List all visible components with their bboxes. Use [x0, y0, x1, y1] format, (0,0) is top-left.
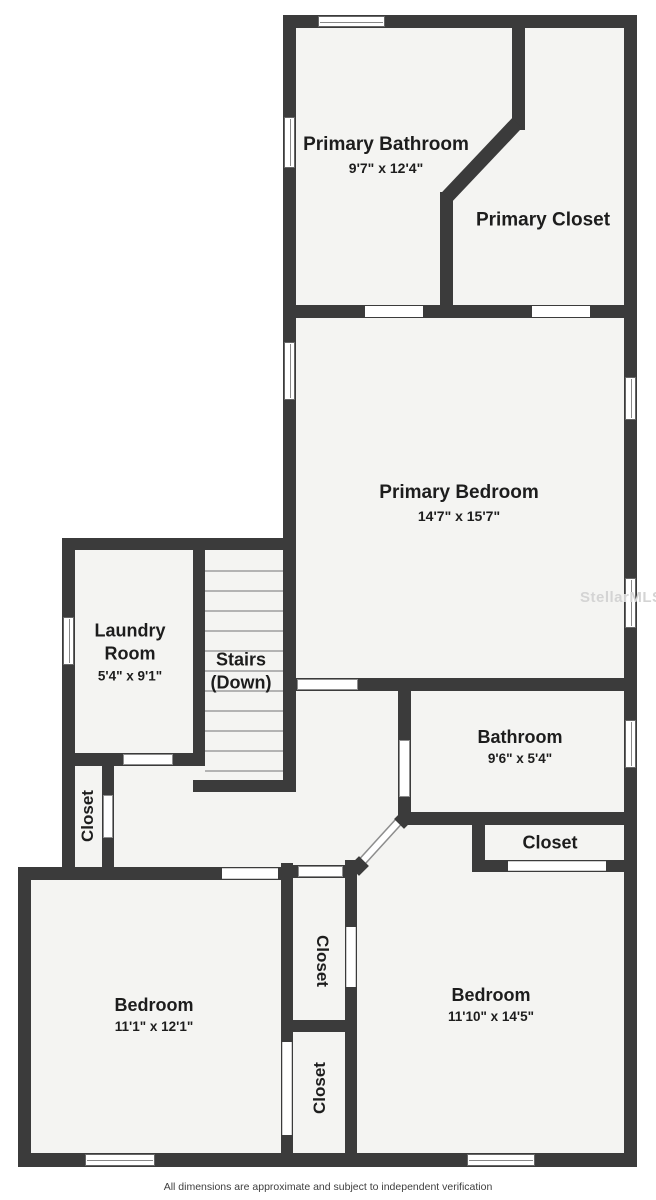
window-primary-bedroom-right-1 [625, 377, 636, 420]
door-bathroom [399, 740, 410, 797]
window-left-bedroom-bottom [85, 1154, 155, 1166]
wall-left-bedroom-left [18, 867, 31, 1167]
wall-left-outer [62, 538, 75, 880]
room-label-left-bedroom: Bedroom 11'1" x 12'1" [114, 994, 193, 1036]
wall-stairs-bottom [193, 780, 296, 792]
opening-center-closet-lower [282, 1042, 292, 1135]
room-dims: 9'7" x 12'4" [303, 159, 469, 177]
room-name: Stairs (Down) [196, 649, 286, 696]
door-left-closet [103, 795, 113, 838]
room-name: Closet [309, 1062, 331, 1114]
wall-laundry-top [62, 538, 296, 550]
door-hall-closet [298, 866, 343, 877]
door-primary-bedroom [297, 679, 358, 690]
wall-top-divider-upper [512, 15, 525, 130]
room-name: Primary Bathroom [303, 133, 469, 158]
room-label-stairs: Stairs (Down) [196, 649, 286, 696]
room-name: Primary Bedroom [379, 481, 538, 506]
room-dims: 5'4" x 9'1" [78, 667, 182, 685]
opening-primary-closet [532, 306, 590, 317]
room-label-right-bedroom: Bedroom 11'10" x 14'5" [448, 984, 534, 1026]
room-label-center-closet-upper: Closet [311, 935, 333, 987]
opening-right-closet [508, 861, 606, 871]
room-name: Closet [311, 935, 333, 987]
room-label-primary-bedroom: Primary Bedroom 14'7" x 15'7" [379, 481, 538, 525]
room-dims: 11'10" x 14'5" [448, 1008, 534, 1026]
wall-top-divider-lower [440, 192, 453, 318]
room-name: Bedroom [448, 984, 534, 1007]
room-label-primary-bathroom: Primary Bathroom 9'7" x 12'4" [303, 133, 469, 177]
room-dims: 9'6" x 5'4" [478, 750, 563, 768]
disclaimer-text: All dimensions are approximate and subje… [0, 1181, 656, 1193]
room-label-bathroom: Bathroom 9'6" x 5'4" [478, 726, 563, 768]
opening-primary-bathroom [365, 306, 423, 317]
wall-bathroom-bottom [398, 812, 637, 825]
room-label-center-closet-lower: Closet [309, 1062, 331, 1114]
floor-plan: Primary Bathroom 9'7" x 12'4" Primary Cl… [0, 0, 656, 1200]
room-name: Laundry Room [78, 619, 182, 666]
room-name: Primary Closet [476, 209, 610, 234]
door-laundry [123, 754, 173, 765]
opening-center-closet-upper [346, 927, 356, 987]
room-name: Bathroom [478, 726, 563, 749]
room-label-left-closet: Closet [77, 790, 99, 842]
window-top [318, 16, 385, 27]
room-label-right-closet: Closet [522, 831, 577, 854]
watermark-stellar-mls: StellarMLS [580, 589, 656, 606]
room-label-primary-closet: Primary Closet [476, 209, 610, 234]
window-primary-bedroom-left [284, 342, 295, 400]
room-dims: 14'7" x 15'7" [379, 507, 538, 525]
room-label-laundry: Laundry Room 5'4" x 9'1" [78, 619, 182, 684]
room-name: Bedroom [114, 994, 193, 1017]
window-right-bedroom-bottom [467, 1154, 535, 1166]
room-dims: 11'1" x 12'1" [114, 1018, 193, 1036]
wall-closet-col-right [345, 860, 357, 1167]
opening-left-bedroom [222, 868, 278, 879]
wall-closet-col-divider [281, 1020, 357, 1032]
room-name: Closet [522, 831, 577, 854]
window-laundry-left [63, 617, 74, 665]
window-bathroom-right [625, 720, 636, 768]
room-name: Closet [77, 790, 99, 842]
window-primary-bathroom-left [284, 117, 295, 168]
